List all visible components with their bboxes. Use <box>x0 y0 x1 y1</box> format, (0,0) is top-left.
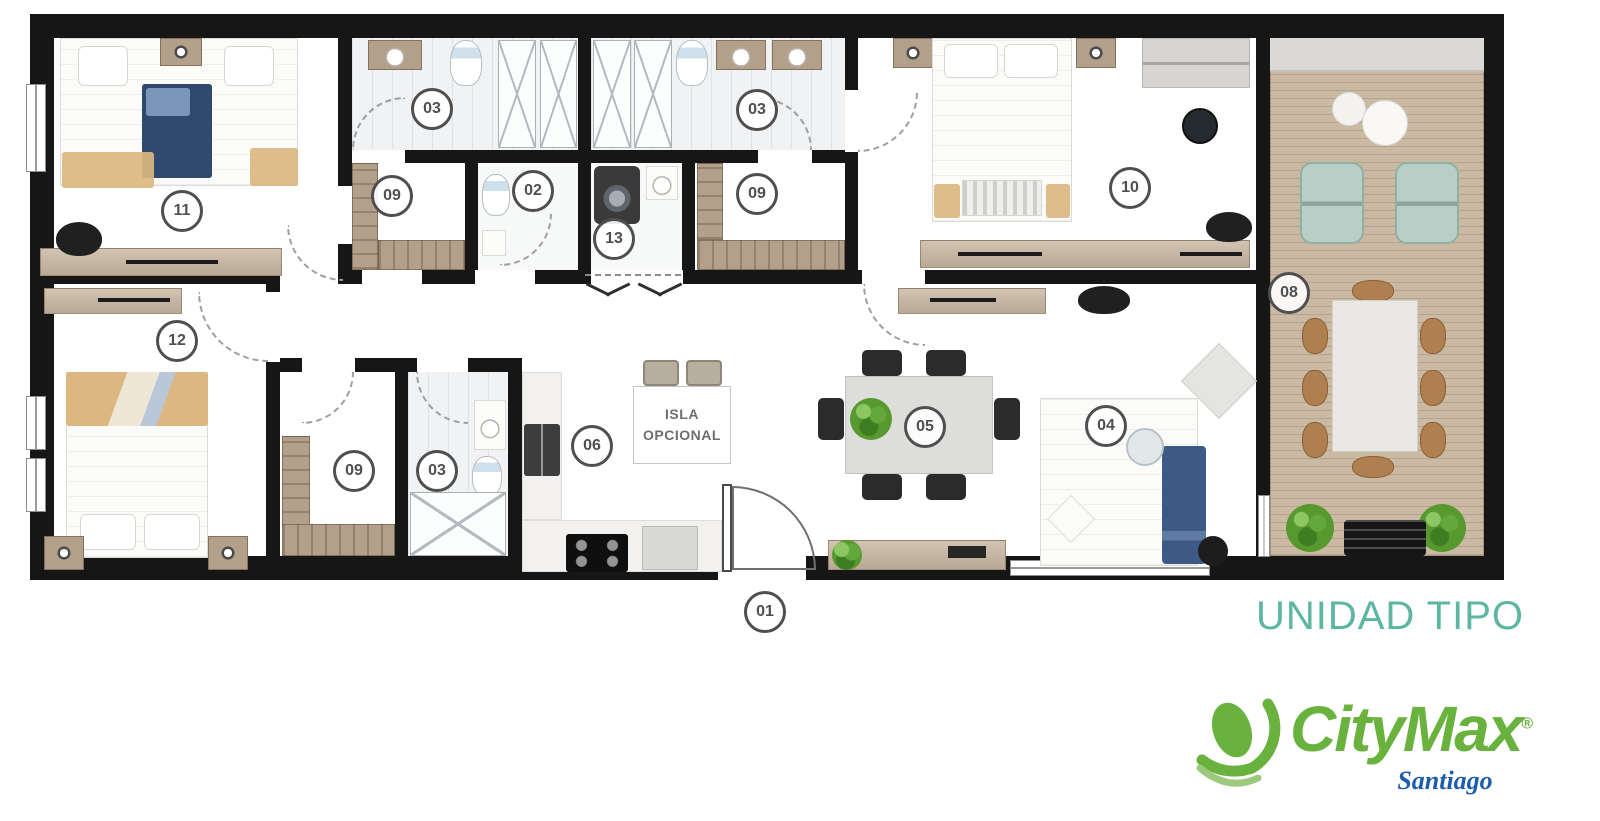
room-label-09b: 09 <box>736 173 778 215</box>
closet-shelf <box>697 240 845 270</box>
plant <box>1286 504 1334 552</box>
door-swing-arc <box>302 372 354 424</box>
wall-segment <box>812 150 845 163</box>
optional-island: ISLA OPCIONAL <box>633 386 731 464</box>
pouf <box>1078 286 1130 314</box>
window <box>26 84 46 172</box>
shower-stall <box>593 40 631 148</box>
toilet <box>676 40 708 86</box>
wall-segment <box>925 270 1256 284</box>
dining-chair <box>862 350 902 376</box>
terrace-chair <box>1420 370 1446 406</box>
dresser-handle <box>126 260 218 264</box>
pillow <box>80 514 136 550</box>
dining-chair <box>994 398 1020 440</box>
washing-machine <box>594 166 640 224</box>
pillow <box>944 44 998 78</box>
bed-throw <box>1046 184 1070 218</box>
terrace-table <box>1332 300 1418 452</box>
fridge <box>524 424 560 476</box>
terrace-chair <box>1420 422 1446 458</box>
side-table <box>1198 536 1228 566</box>
room-label-13: 13 <box>593 218 635 260</box>
bifold-door-chevron <box>606 282 631 296</box>
shower-stall <box>634 40 672 148</box>
wall-segment <box>405 150 578 163</box>
sink-cabinet <box>368 40 422 70</box>
plan-title: UNIDAD TIPO <box>1250 594 1530 639</box>
logo-location: Santiago <box>1365 766 1525 796</box>
logo-brand: CityMax® <box>1290 692 1531 766</box>
wall-segment <box>422 270 475 284</box>
toilet <box>472 456 502 496</box>
bar-stool <box>643 360 679 386</box>
nightstand <box>893 38 933 68</box>
shower-stall <box>540 40 577 148</box>
dresser-handle <box>958 252 1042 256</box>
closet-shelf <box>282 524 395 556</box>
bed-throw <box>934 184 960 218</box>
plant <box>832 540 862 570</box>
wall-segment <box>535 270 583 284</box>
opening-dash <box>585 274 681 276</box>
room-label-10: 10 <box>1109 167 1151 209</box>
terrace-chair <box>1420 318 1446 354</box>
terrace-chair <box>1302 422 1328 458</box>
room-label-09c: 09 <box>333 450 375 492</box>
closet-shelf <box>378 240 465 270</box>
coffee-table <box>1126 428 1164 466</box>
wall-segment <box>355 358 417 372</box>
bed-throw <box>250 148 298 186</box>
ceiling-fan-icon <box>1182 108 1218 144</box>
toilet <box>482 174 510 216</box>
terrace-side-table <box>1362 100 1408 146</box>
nightstand <box>208 536 248 570</box>
wall-segment <box>682 163 695 270</box>
sink-cabinet <box>716 40 766 70</box>
wall-segment <box>395 372 408 556</box>
pillow <box>144 514 200 550</box>
room-label-09a: 09 <box>371 175 413 217</box>
dining-chair <box>862 474 902 500</box>
dining-chair <box>818 398 844 440</box>
logo-registered-mark: ® <box>1521 716 1531 733</box>
island-label-line2: OPCIONAL <box>643 425 721 446</box>
chair <box>56 222 102 256</box>
wardrobe <box>1142 38 1250 88</box>
dining-chair <box>926 350 966 376</box>
bed-throw <box>62 152 154 188</box>
toilet <box>450 40 482 86</box>
door-swing-arc <box>198 292 268 362</box>
lounge-chair <box>1300 162 1364 244</box>
door-swing-arc <box>863 284 925 346</box>
wall-segment <box>578 14 591 284</box>
entry-door-swing <box>732 486 816 570</box>
lounge-chair <box>1395 162 1459 244</box>
terrace-chair <box>1352 280 1394 302</box>
window <box>26 396 46 450</box>
utility-sink <box>646 166 678 200</box>
room-label-12: 12 <box>156 320 198 362</box>
bifold-door-chevron <box>658 282 683 296</box>
room-label-11: 11 <box>161 190 203 232</box>
door-swing-arc <box>287 225 343 281</box>
door-swing-arc <box>858 92 918 152</box>
pillow <box>1004 44 1058 78</box>
terrace-slider-opening <box>1258 495 1270 557</box>
room-label-06: 06 <box>571 425 613 467</box>
bed-runner <box>962 180 1042 216</box>
nightstand <box>1076 38 1116 68</box>
closet-shelf <box>352 163 378 270</box>
wall-segment <box>468 358 508 372</box>
bar-stool <box>686 360 722 386</box>
terrace-chair <box>1352 456 1394 478</box>
blue-blanket-fold <box>146 88 190 116</box>
pillow <box>224 46 274 86</box>
sink-cabinet <box>772 40 822 70</box>
table-plant <box>850 398 892 440</box>
bed-quilt <box>66 372 208 426</box>
room-label-08: 08 <box>1268 272 1310 314</box>
room-label-03b: 03 <box>736 89 778 131</box>
wall-segment <box>1484 14 1504 580</box>
wall-segment <box>465 163 478 270</box>
pillow <box>78 46 128 86</box>
grill <box>1344 520 1426 556</box>
entry-door-leaf <box>722 484 732 572</box>
room-label-01: 01 <box>744 591 786 633</box>
wall-segment <box>845 152 858 270</box>
wall-segment <box>591 150 758 163</box>
kitchen-sink <box>642 526 698 570</box>
terrace-chair <box>1302 318 1328 354</box>
room-label-04: 04 <box>1085 405 1127 447</box>
nightstand <box>44 536 84 570</box>
wall-segment <box>280 358 302 372</box>
island-label-line1: ISLA <box>665 404 699 425</box>
wall-segment <box>30 14 1500 38</box>
wall-segment <box>683 270 862 284</box>
room-label-02: 02 <box>512 170 554 212</box>
wall-segment <box>508 358 522 556</box>
room-label-05: 05 <box>904 406 946 448</box>
shower-stall <box>498 40 536 148</box>
dining-chair <box>926 474 966 500</box>
room-label-03a: 03 <box>411 88 453 130</box>
shower-stall <box>410 492 506 556</box>
sideboard-handle <box>930 298 996 302</box>
floor-plan-canvas: ISLA OPCIONAL 11 03 09 <box>0 0 1600 821</box>
wall-segment <box>266 362 280 580</box>
wall-segment <box>845 14 858 90</box>
citymax-logo: CityMax® Santiago <box>1190 690 1580 810</box>
terrace-side-table <box>1332 92 1366 126</box>
wall-segment <box>1256 556 1500 580</box>
cooktop <box>566 534 628 572</box>
terrace-chair <box>1302 370 1328 406</box>
citymax-logo-icon <box>1190 690 1290 800</box>
window <box>26 458 46 512</box>
sink <box>474 400 506 450</box>
room-label-03c: 03 <box>416 450 458 492</box>
wall-segment <box>338 14 352 186</box>
logo-brand-text: CityMax <box>1290 693 1521 765</box>
closet-shelf <box>697 163 723 240</box>
dresser-handle <box>98 298 170 302</box>
console-decor <box>948 546 986 558</box>
nightstand <box>160 38 202 66</box>
chair <box>1206 212 1252 242</box>
dresser-handle <box>1180 252 1242 256</box>
